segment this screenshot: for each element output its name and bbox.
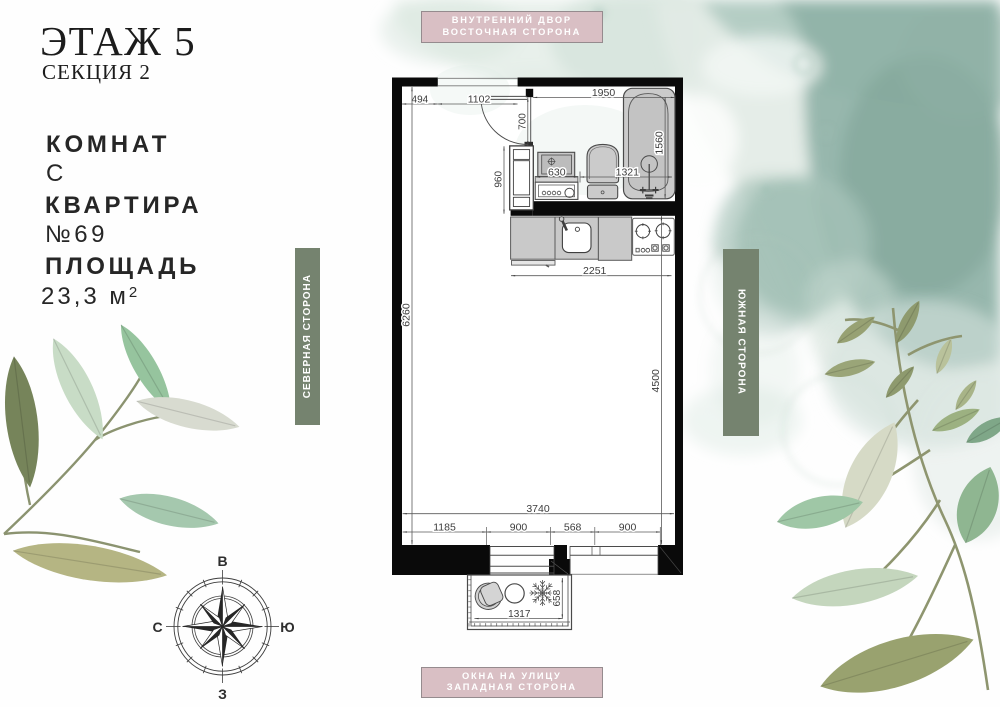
svg-text:6260: 6260 bbox=[401, 303, 413, 327]
svg-text:960: 960 bbox=[494, 171, 505, 188]
svg-text:1102: 1102 bbox=[468, 94, 491, 106]
svg-text:900: 900 bbox=[510, 522, 528, 534]
svg-text:3740: 3740 bbox=[526, 503, 550, 515]
svg-text:З: З bbox=[218, 686, 227, 702]
svg-text:С: С bbox=[152, 619, 162, 635]
svg-text:494: 494 bbox=[412, 95, 429, 106]
svg-text:900: 900 bbox=[619, 522, 637, 534]
svg-text:1560: 1560 bbox=[654, 131, 666, 155]
svg-text:568: 568 bbox=[564, 522, 582, 534]
svg-text:4500: 4500 bbox=[650, 369, 662, 393]
svg-text:700: 700 bbox=[517, 113, 528, 130]
svg-text:1321: 1321 bbox=[616, 167, 640, 179]
svg-text:В: В bbox=[217, 553, 227, 569]
svg-text:1950: 1950 bbox=[592, 87, 616, 99]
svg-text:Ю: Ю bbox=[280, 619, 294, 635]
svg-text:630: 630 bbox=[548, 167, 566, 179]
svg-text:1317: 1317 bbox=[508, 609, 531, 620]
svg-text:658: 658 bbox=[552, 589, 563, 606]
svg-text:2251: 2251 bbox=[583, 265, 607, 277]
svg-text:1185: 1185 bbox=[433, 522, 456, 534]
